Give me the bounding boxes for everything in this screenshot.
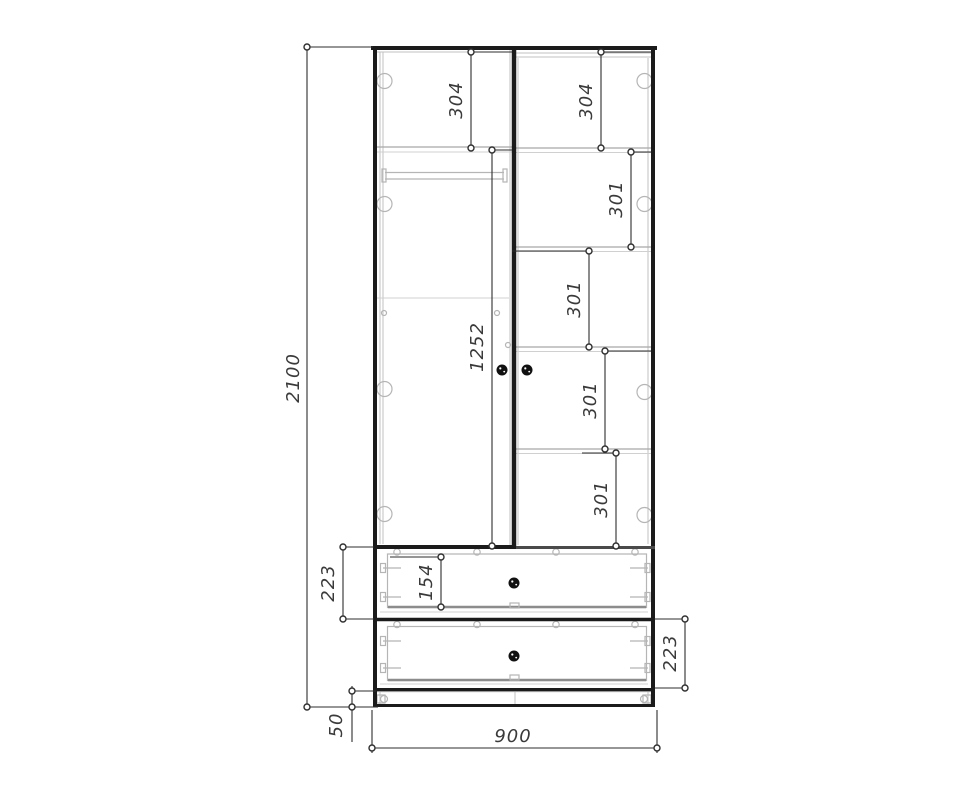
- left-inner-height-label: 1252: [467, 322, 488, 372]
- rail-bracket-right: [503, 169, 507, 182]
- right-section-1-label: 301: [606, 180, 627, 217]
- door-handle-right: [522, 365, 533, 376]
- drawer-slide-left: [381, 564, 402, 602]
- hinge-icon: [637, 74, 652, 89]
- right-section-3-label: 301: [580, 381, 601, 418]
- right-section-2-label: 301: [564, 280, 585, 317]
- hinge-icon: [377, 382, 392, 397]
- dimension-lines: [304, 44, 688, 753]
- plinth-height-label: 50: [326, 713, 347, 738]
- hinge-icon: [377, 74, 392, 89]
- wardrobe-technical-drawing: 2100 900 50 304 304 301 301 301 301 1252…: [0, 0, 978, 800]
- overall-width-label: 900: [494, 726, 531, 747]
- hinge-icon: [377, 197, 392, 212]
- hinge-icon: [377, 507, 392, 522]
- dimension-labels: 2100 900 50 304 304 301 301 301 301 1252…: [283, 81, 681, 747]
- hinge-icon: [637, 508, 652, 523]
- dim-left-top-section: [468, 49, 512, 151]
- hinge-icon: [637, 385, 652, 400]
- overall-height-label: 2100: [283, 353, 304, 403]
- drawer-handle: [509, 651, 520, 662]
- left-top-section-label: 304: [446, 81, 467, 118]
- door-handle-left: [497, 365, 508, 376]
- dim-overall-height: [304, 44, 378, 710]
- dim-right-top-section: [598, 49, 651, 151]
- upper-drawer-height-label: 223: [318, 564, 339, 601]
- drawer-front-height-label: 154: [416, 563, 437, 600]
- lower-drawer: [380, 621, 650, 684]
- drawing-canvas: 2100 900 50 304 304 301 301 301 301 1252…: [0, 0, 978, 800]
- hinge-icon: [637, 197, 652, 212]
- dim-upper-drawer: [340, 544, 374, 622]
- drawer-slide-left: [381, 637, 402, 673]
- right-top-section-label: 304: [576, 82, 597, 119]
- right-section-4-label: 301: [591, 480, 612, 517]
- drawer-handle: [509, 578, 520, 589]
- plinth: [377, 692, 651, 706]
- lower-drawer-height-label: 223: [660, 634, 681, 671]
